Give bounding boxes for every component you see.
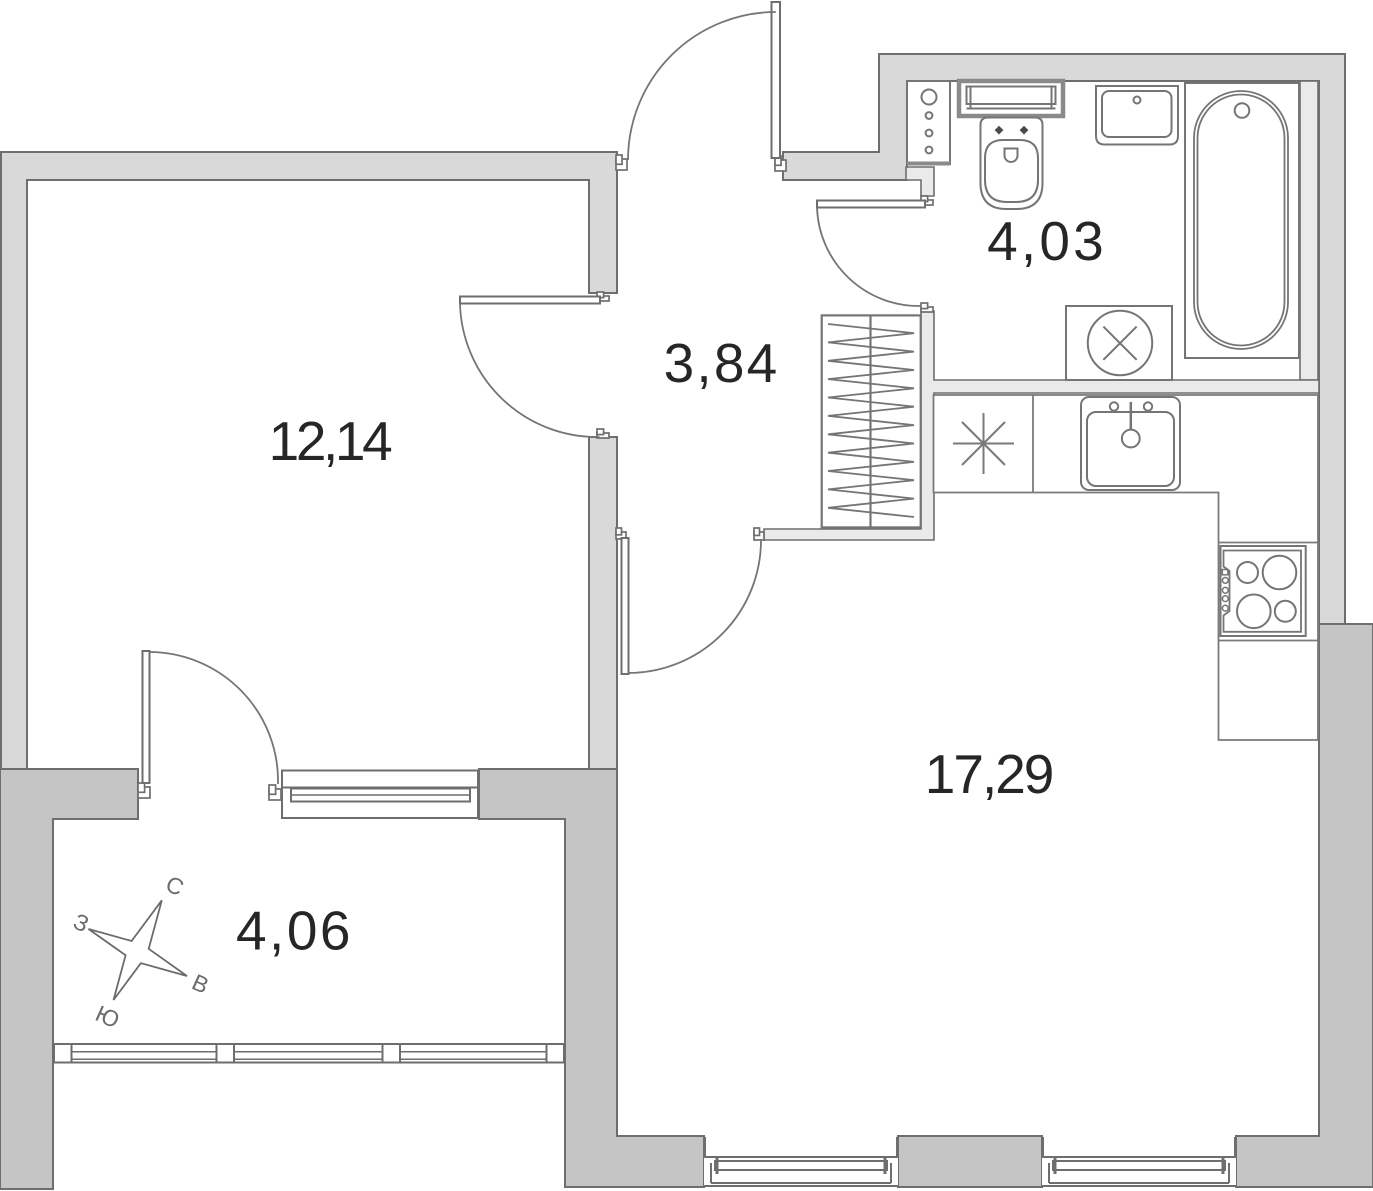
svg-text:4,03: 4,03: [987, 210, 1107, 272]
svg-text:3,84: 3,84: [664, 332, 780, 394]
svg-text:17,29: 17,29: [925, 743, 1053, 805]
svg-text:4,06: 4,06: [236, 900, 353, 962]
svg-text:12,14: 12,14: [269, 410, 391, 472]
